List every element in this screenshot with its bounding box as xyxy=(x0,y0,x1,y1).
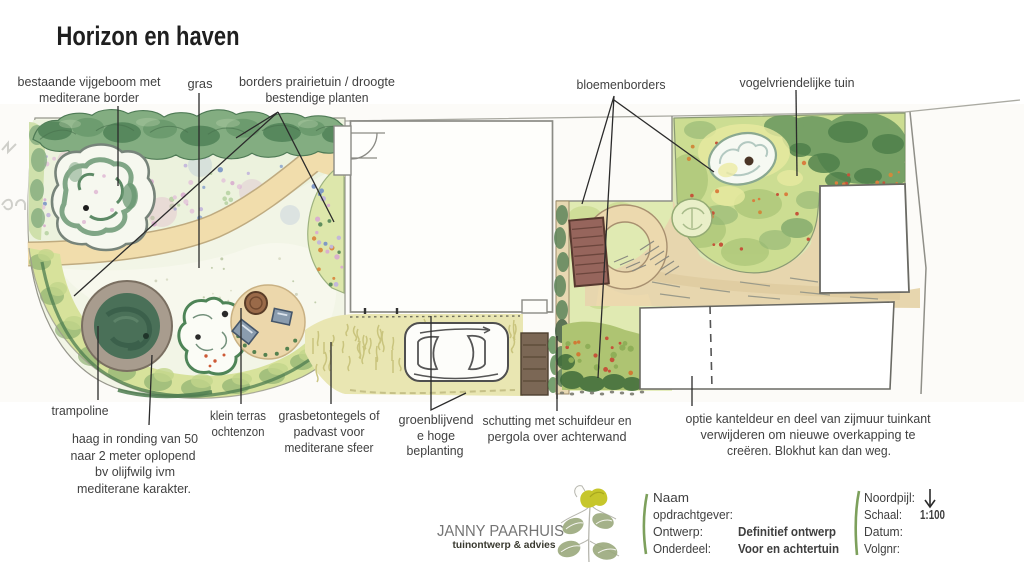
svg-text:groenblijvend: groenblijvend xyxy=(399,412,474,427)
svg-text:haag in ronding van 50: haag in ronding van 50 xyxy=(72,431,198,446)
svg-text:Definitief ontwerp: Definitief ontwerp xyxy=(738,524,836,539)
svg-text:gras: gras xyxy=(188,76,213,91)
svg-text:beplanting: beplanting xyxy=(407,443,464,458)
svg-text:Ontwerp:: Ontwerp: xyxy=(653,524,703,539)
svg-text:verwijderen om nieuwe overkap: verwijderen om nieuwe overkapping te xyxy=(701,427,916,442)
svg-text:mediterane karakter.: mediterane karakter. xyxy=(77,481,191,496)
svg-text:mediterane border: mediterane border xyxy=(39,90,140,105)
svg-text:creëren. Blokhut kan dan weg.: creëren. Blokhut kan dan weg. xyxy=(727,443,891,458)
svg-text:pergola over achterwand: pergola over achterwand xyxy=(488,429,627,444)
svg-text:bestaande vijgeboom met: bestaande vijgeboom met xyxy=(18,74,161,89)
svg-text:Volgnr:: Volgnr: xyxy=(864,541,900,556)
svg-text:1:100: 1:100 xyxy=(920,507,945,522)
svg-text:grasbetontegels of: grasbetontegels of xyxy=(279,408,380,423)
svg-text:Noordpijl:: Noordpijl: xyxy=(864,490,915,505)
svg-text:vogelvriendelijke tuin: vogelvriendelijke tuin xyxy=(740,75,855,90)
svg-text:borders prairietuin / droogte: borders prairietuin / droogte xyxy=(239,74,395,89)
svg-text:Schaal:: Schaal: xyxy=(864,507,902,522)
svg-text:optie kanteldeur en deel van z: optie kanteldeur en deel van zijmuur tui… xyxy=(686,411,931,426)
svg-text:naar 2 meter oplopend: naar 2 meter oplopend xyxy=(71,448,196,463)
svg-text:mediterane sfeer: mediterane sfeer xyxy=(285,440,375,455)
svg-text:Horizon en haven: Horizon en haven xyxy=(57,21,240,51)
svg-text:Voor en achtertuin: Voor en achtertuin xyxy=(738,541,839,556)
svg-text:padvast voor: padvast voor xyxy=(294,424,366,439)
svg-text:ochtenzon: ochtenzon xyxy=(212,424,265,439)
svg-text:bloemenborders: bloemenborders xyxy=(577,77,666,92)
svg-text:bestendige planten: bestendige planten xyxy=(266,90,369,105)
svg-text:JANNY PAARHUIS: JANNY PAARHUIS xyxy=(437,523,564,540)
svg-text:schutting met schuifdeur en: schutting met schuifdeur en xyxy=(483,413,632,428)
svg-text:bv olijfwilg ivm: bv olijfwilg ivm xyxy=(95,464,175,479)
svg-text:Naam: Naam xyxy=(653,490,689,505)
svg-text:opdrachtgever:: opdrachtgever: xyxy=(653,507,733,522)
svg-text:e hoge: e hoge xyxy=(417,428,455,443)
svg-text:trampoline: trampoline xyxy=(52,403,109,418)
svg-text:Onderdeel:: Onderdeel: xyxy=(653,541,711,556)
svg-text:klein terras: klein terras xyxy=(210,408,266,423)
svg-text:Datum:: Datum: xyxy=(864,524,903,539)
svg-text:tuinontwerp & advies: tuinontwerp & advies xyxy=(453,539,556,551)
